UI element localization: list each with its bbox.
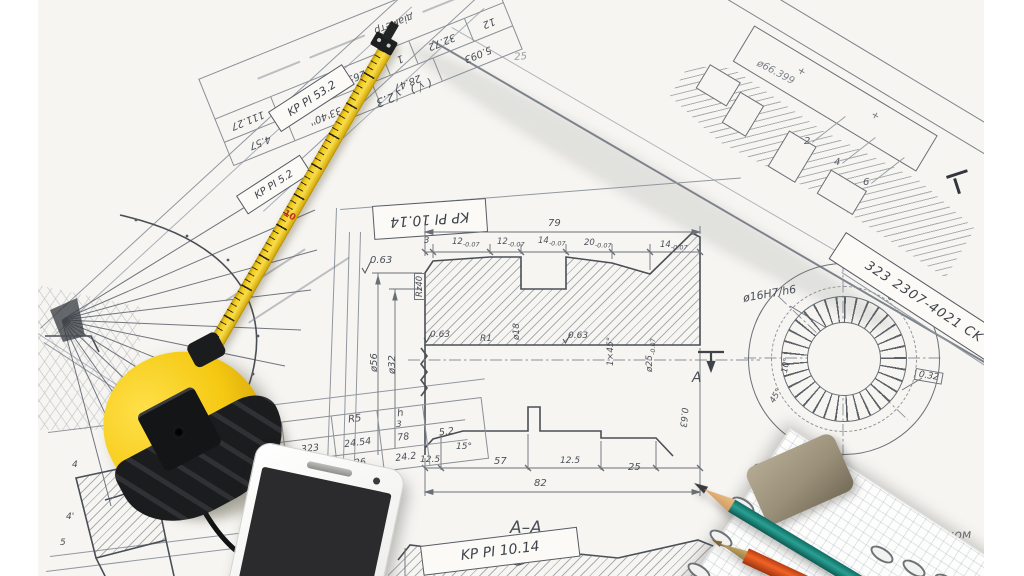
phone-camera-dot [372, 477, 380, 485]
white-margin-left [0, 0, 38, 576]
photo-of-engineering-drawings: 5.093 28.47 44°33'40'' 4.57 12 32.72 1 5… [0, 0, 1024, 576]
pencil-graphite-tip [692, 480, 708, 494]
phone-speaker [306, 461, 352, 477]
phone-screen [231, 467, 391, 576]
white-margin-right [984, 0, 1024, 576]
tape-clip-hole [171, 424, 187, 440]
pen-ball-tip [711, 537, 723, 547]
